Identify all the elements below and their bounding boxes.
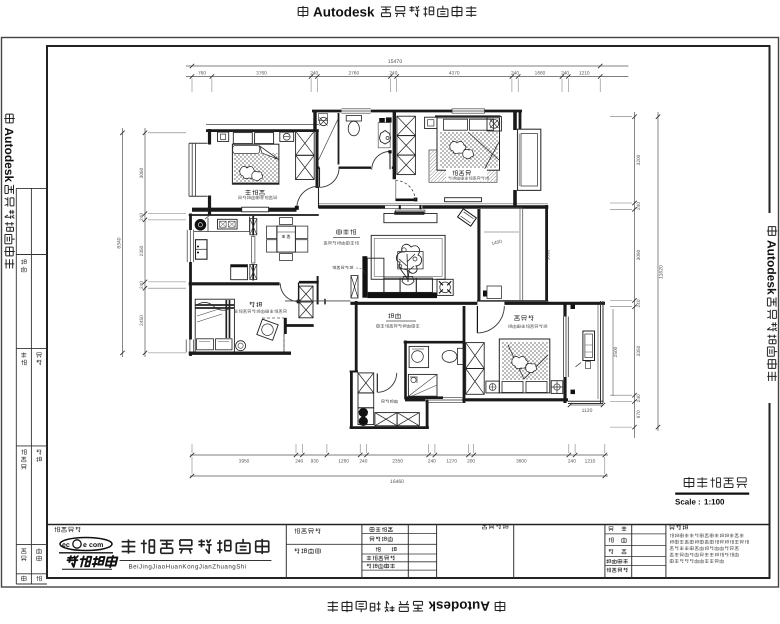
svg-text:240: 240 [310, 71, 318, 77]
svg-text:ec: ec [62, 542, 70, 549]
svg-text:Autodesk: Autodesk [2, 128, 16, 183]
svg-text:240: 240 [359, 459, 367, 465]
svg-text:760: 760 [198, 71, 206, 77]
svg-text:240: 240 [636, 202, 642, 210]
svg-text:4370: 4370 [449, 71, 460, 77]
svg-text:1:100: 1:100 [704, 498, 725, 507]
svg-text:1210: 1210 [585, 459, 596, 465]
svg-text:3350: 3350 [636, 345, 642, 356]
svg-text:240: 240 [568, 459, 576, 465]
svg-text:240: 240 [139, 281, 145, 289]
svg-text:2500: 2500 [613, 346, 619, 357]
svg-text:2350: 2350 [139, 245, 145, 256]
svg-text:16460: 16460 [390, 479, 404, 485]
svg-text:1270: 1270 [446, 459, 457, 465]
svg-text:970: 970 [636, 410, 642, 418]
svg-text:200: 200 [467, 459, 475, 465]
svg-text:11620: 11620 [659, 265, 665, 279]
svg-text:com: com [89, 542, 103, 549]
svg-text:Autodesk: Autodesk [765, 240, 779, 295]
svg-text:1210: 1210 [579, 71, 590, 77]
svg-text:930: 930 [311, 459, 319, 465]
svg-text:240: 240 [295, 459, 303, 465]
svg-text:240: 240 [428, 459, 436, 465]
svg-text:3950: 3950 [239, 459, 250, 465]
svg-text:240: 240 [636, 299, 642, 307]
svg-text:BeiJingJiaoHuanKongJianZhuangS: BeiJingJiaoHuanKongJianZhuangShi [129, 564, 247, 571]
svg-text:3200: 3200 [636, 154, 642, 165]
svg-text::: : [698, 498, 701, 507]
svg-text:8340: 8340 [117, 237, 123, 248]
svg-text:240: 240 [636, 394, 642, 402]
svg-text:Autodesk: Autodesk [313, 5, 375, 20]
svg-text:240: 240 [389, 71, 397, 77]
svg-text:2450: 2450 [139, 315, 145, 326]
svg-text:240: 240 [561, 71, 569, 77]
svg-text:Autodesk: Autodesk [428, 599, 490, 614]
svg-text:2350: 2350 [392, 459, 403, 465]
svg-text:3760: 3760 [256, 71, 267, 77]
svg-text:1260: 1260 [338, 459, 349, 465]
svg-text:3600: 3600 [516, 459, 527, 465]
svg-text:240: 240 [511, 71, 519, 77]
svg-text:1120: 1120 [582, 408, 593, 414]
svg-text:Scale: Scale [675, 498, 696, 507]
svg-text:240: 240 [139, 213, 145, 221]
svg-text:1660: 1660 [535, 71, 546, 77]
svg-text:3060: 3060 [139, 167, 145, 178]
svg-text:3090: 3090 [636, 249, 642, 260]
svg-text:2760: 2760 [348, 71, 359, 77]
svg-text:e: e [83, 542, 87, 549]
svg-text:15470: 15470 [388, 59, 403, 65]
